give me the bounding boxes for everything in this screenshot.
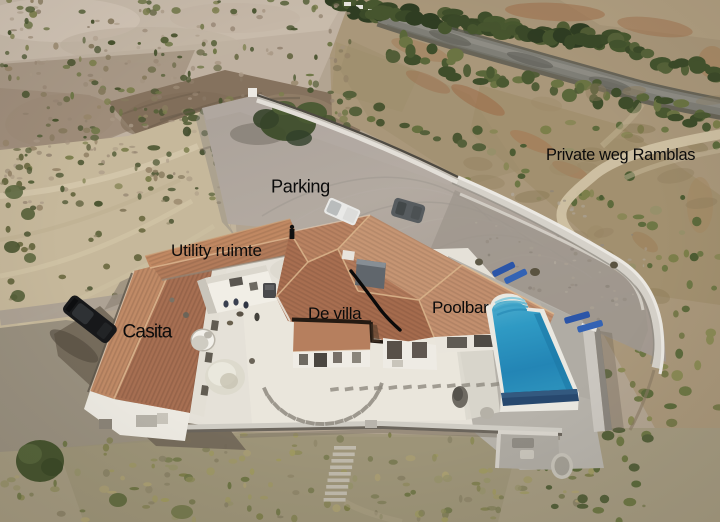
svg-text:Casita: Casita — [123, 322, 173, 343]
svg-text:Parking: Parking — [271, 177, 330, 197]
svg-text:Private weg Ramblas: Private weg Ramblas — [546, 146, 695, 164]
svg-text:Poolbar: Poolbar — [432, 298, 489, 317]
svg-text:De villa: De villa — [308, 304, 362, 323]
svg-text:Utility ruimte: Utility ruimte — [171, 241, 262, 260]
